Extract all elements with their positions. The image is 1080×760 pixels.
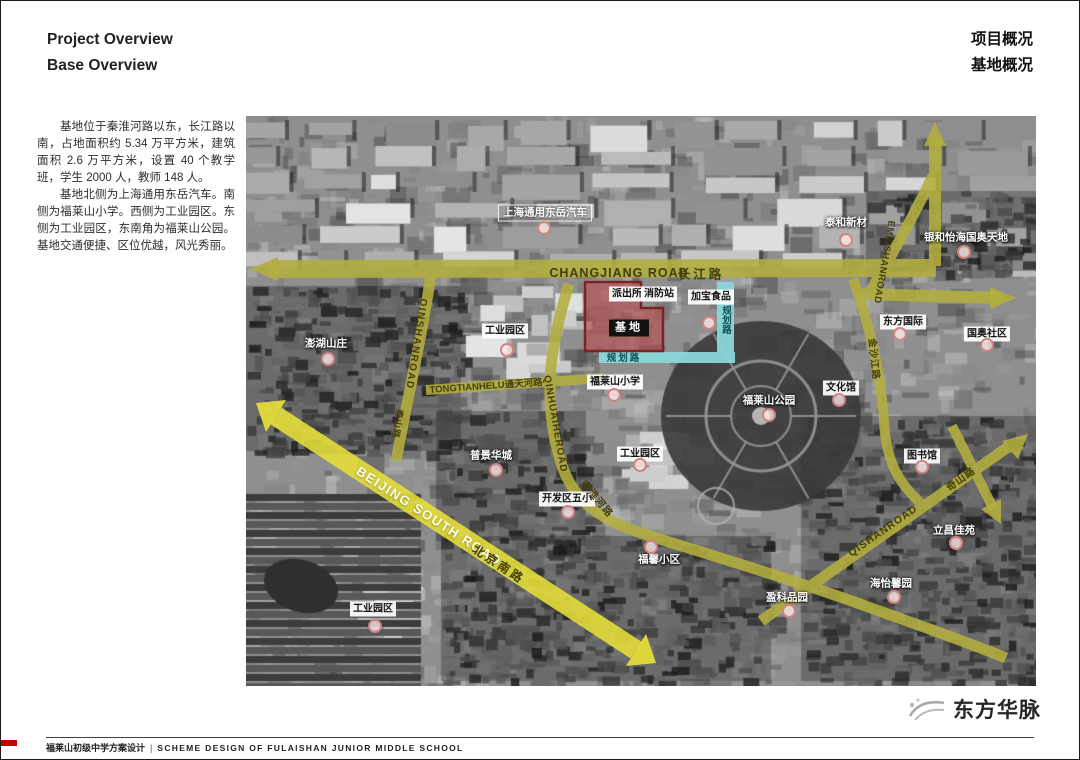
map-place-label: 银和怡海国奥天地 (924, 232, 1008, 245)
page-title-en-line2: Base Overview (47, 53, 173, 79)
footer-project-title: 福莱山初级中学方案设计|SCHEME DESIGN OF FULAISHAN J… (46, 741, 464, 754)
map-pin-icon (489, 463, 503, 477)
page-title-chinese: 项目概况 基地概况 (971, 27, 1033, 79)
map-pin-icon (915, 460, 929, 474)
page-title-cn-line1: 项目概况 (971, 27, 1033, 53)
map-place-label: 福莱山公园 (743, 395, 796, 408)
map-label-layer: 上海通用东岳汽车泰和新材银和怡海国奥天地派出所消防站加宝食品基地工业园区澎湖山庄… (246, 116, 1036, 686)
map-pin-icon (500, 343, 514, 357)
map-place-label: 上海通用东岳汽车 (498, 205, 592, 222)
map-place-label: 海怡馨园 (870, 578, 912, 591)
map-place-label: 工业园区 (350, 602, 396, 617)
map-pin-icon (782, 604, 796, 618)
page-title-cn-line2: 基地概况 (971, 53, 1033, 79)
page-title-english: Project Overview Base Overview (47, 27, 173, 79)
footer-project-en: SCHEME DESIGN OF FULAISHAN JUNIOR MIDDLE… (157, 743, 463, 753)
map-place-label: 普景华城 (470, 450, 512, 463)
road-name-label: 金沙江路 (866, 337, 884, 380)
footer-separator: | (150, 743, 152, 753)
map-pin-icon (561, 505, 575, 519)
map-place-label: 泰和新材 (825, 217, 867, 230)
road-name-label: 规划路 (607, 350, 642, 364)
road-name-label: 北京南路 (469, 541, 529, 588)
road-name-label: TONGTIANHELU通天河路 (429, 374, 543, 396)
map-pin-icon (832, 393, 846, 407)
map-place-label: 派出所 (609, 287, 645, 302)
map-pin-icon (368, 619, 382, 633)
map-place-label: 加宝食品 (688, 290, 734, 305)
map-place-label: 福馨小区 (638, 554, 680, 567)
map-place-label: 澎湖山庄 (305, 338, 347, 351)
road-name-label: EMEISHANROAD (871, 220, 896, 305)
road-name-label: QINHUAIHEROAD (541, 375, 569, 474)
logo-swoosh-icon (907, 692, 947, 726)
map-pin-icon (607, 388, 621, 402)
site-description-paragraph-2: 基地北侧为上海通用东岳汽车。南侧为福莱山小学。西侧为工业园区。东侧为工业园区，东… (37, 187, 235, 255)
company-logo-text: 东方华脉 (953, 694, 1041, 724)
road-name-label: 规划路 (718, 306, 732, 335)
map-place-label: 盈科品园 (766, 592, 808, 605)
map-pin-icon (633, 458, 647, 472)
map-pin-icon (321, 352, 335, 366)
map-pin-icon (762, 408, 776, 422)
company-logo: 东方华脉 (907, 692, 1041, 726)
slide-page: Project Overview Base Overview 项目概况 基地概况… (0, 0, 1080, 760)
footer-divider-line (46, 737, 1034, 738)
road-name-label: 秦山路 (389, 408, 407, 440)
map-pin-icon (980, 338, 994, 352)
road-name-label: CHANGJIANG ROAD (549, 266, 688, 280)
footer-red-accent (1, 740, 17, 746)
map-pin-icon (537, 221, 551, 235)
footer-project-cn: 福莱山初级中学方案设计 (46, 743, 145, 753)
site-description-paragraph-1: 基地位于秦淮河路以东，长江路以南，占地面积约 5.34 万平方米，建筑面积 2.… (37, 119, 235, 187)
map-pin-icon (893, 327, 907, 341)
road-name-label: 奇山路 (942, 462, 978, 493)
road-name-label: QINSHANROAD (403, 298, 428, 391)
site-description: 基地位于秦淮河路以东，长江路以南，占地面积约 5.34 万平方米，建筑面积 2.… (37, 119, 235, 255)
satellite-map: 上海通用东岳汽车泰和新材银和怡海国奥天地派出所消防站加宝食品基地工业园区澎湖山庄… (246, 116, 1036, 686)
page-title-en-line1: Project Overview (47, 27, 173, 53)
road-name-label: 长江路 (678, 264, 725, 283)
map-pin-icon (702, 316, 716, 330)
map-pin-icon (949, 536, 963, 550)
map-place-label: 基地 (609, 320, 649, 337)
map-pin-icon (839, 233, 853, 247)
map-place-label: 工业园区 (482, 324, 528, 339)
map-pin-icon (957, 245, 971, 259)
map-pin-icon (644, 540, 658, 554)
road-name-label: QISHANROAD (846, 503, 920, 560)
map-place-label: 消防站 (641, 287, 677, 302)
map-pin-icon (887, 590, 901, 604)
